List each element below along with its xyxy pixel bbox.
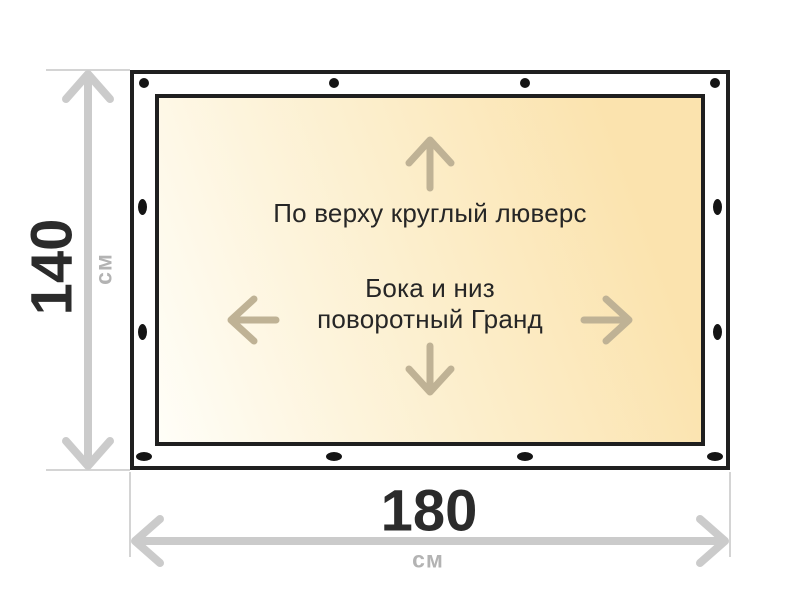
width-arrow-head-right bbox=[700, 519, 725, 563]
grommet-round bbox=[520, 78, 530, 88]
direction-arrows bbox=[159, 98, 701, 442]
grommet-oval-vertical bbox=[138, 199, 147, 215]
height-unit: см bbox=[91, 253, 118, 285]
height-arrow-head-top bbox=[66, 74, 110, 99]
direction-down-arrow-icon bbox=[409, 346, 451, 392]
width-value: 180 bbox=[381, 478, 478, 545]
direction-up-arrow-icon bbox=[409, 140, 451, 188]
grommet-oval-horizontal bbox=[517, 452, 533, 461]
height-value: 140 bbox=[19, 219, 86, 316]
width-unit: см bbox=[412, 547, 444, 574]
sides-bottom-note-line1: Бока и низ bbox=[159, 273, 701, 304]
grommet-round bbox=[139, 78, 149, 88]
sides-bottom-note-line2: поворотный Гранд bbox=[159, 304, 701, 335]
grommet-oval-vertical bbox=[713, 324, 722, 340]
grommet-oval-vertical bbox=[713, 199, 722, 215]
grommet-round bbox=[710, 78, 720, 88]
grommet-round bbox=[329, 78, 339, 88]
width-arrow-head-left bbox=[135, 519, 160, 563]
banner-print-area: По верху круглый люверс Бока и низ повор… bbox=[155, 94, 705, 446]
grommet-oval-horizontal bbox=[326, 452, 342, 461]
banner-size-diagram: По верху круглый люверс Бока и низ повор… bbox=[0, 0, 800, 600]
height-arrow-head-bottom bbox=[66, 441, 110, 466]
grommet-oval-horizontal bbox=[136, 452, 152, 461]
grommet-oval-vertical bbox=[138, 324, 147, 340]
top-edge-note: По верху круглый люверс bbox=[159, 198, 701, 229]
sides-bottom-note: Бока и низ поворотный Гранд bbox=[159, 273, 701, 335]
grommet-oval-horizontal bbox=[707, 452, 723, 461]
